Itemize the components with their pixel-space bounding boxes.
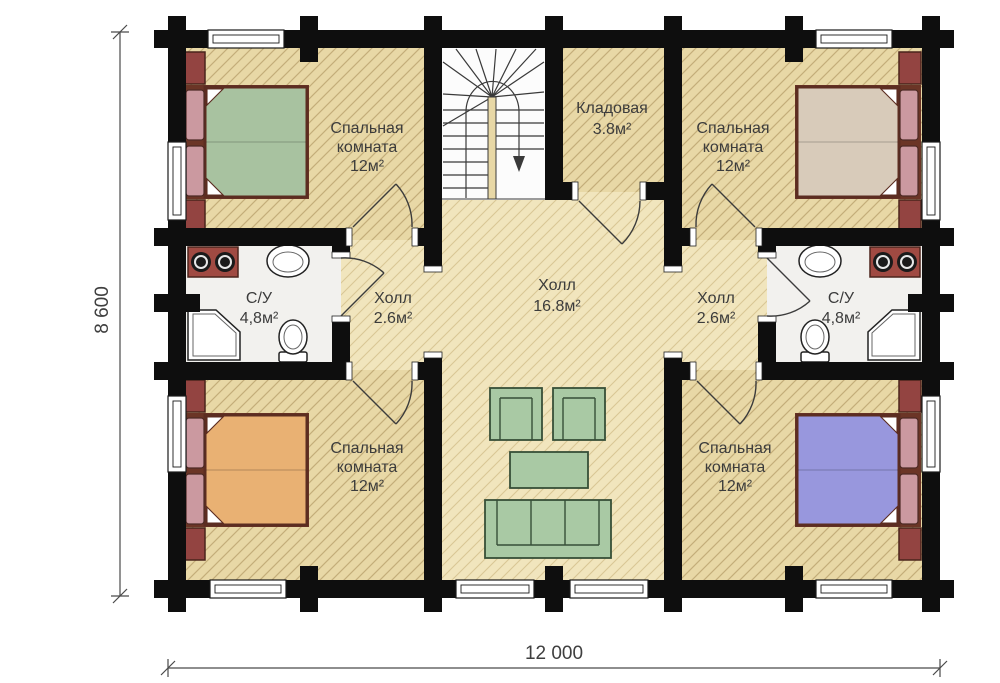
bedroom-tr-area: 12м² [716, 158, 751, 175]
window [816, 580, 892, 598]
storage-label: Кладовая [576, 100, 648, 117]
floor-plan: Спальная комната 12м² Спальная комната 1… [0, 0, 1000, 683]
window [816, 30, 892, 48]
nightstand [183, 528, 205, 560]
dimension-height-label: 8 600 [92, 286, 113, 334]
dimension-left: 8 600 [92, 25, 129, 603]
hall-right-label: Холл [697, 290, 735, 307]
window [168, 142, 186, 220]
sofa [485, 500, 611, 558]
window [922, 142, 940, 220]
armchair [490, 388, 542, 440]
bedroom-tr-label: комната [703, 139, 764, 156]
dimension-width-label: 12 000 [525, 643, 583, 664]
bedroom-tl-label: Спальная [330, 120, 403, 137]
stair-divider [488, 97, 496, 199]
bedroom-bl-label: комната [337, 459, 398, 476]
bath-right-area: 4,8м² [822, 310, 861, 327]
bedroom-br-area: 12м² [718, 478, 753, 495]
window [456, 580, 534, 598]
dimension-bottom: 12 000 [161, 643, 947, 677]
nightstand [899, 200, 921, 232]
bedroom-br-label: Спальная [698, 440, 771, 457]
bedroom-br-label: комната [705, 459, 766, 476]
toilet [279, 320, 307, 362]
nightstand [899, 380, 921, 412]
bath-left-label: С/У [246, 290, 273, 307]
nightstand [899, 528, 921, 560]
hall-right-area: 2.6м² [697, 310, 736, 327]
washing-machine [188, 247, 238, 277]
sink [267, 244, 309, 277]
bath-left-area: 4,8м² [240, 310, 279, 327]
coffee-table [510, 452, 588, 488]
bedroom-bl-area: 12м² [350, 478, 385, 495]
window [922, 396, 940, 472]
window [210, 580, 286, 598]
washing-machine [870, 247, 920, 277]
nightstand [183, 52, 205, 84]
bath-right-label: С/У [828, 290, 855, 307]
bedroom-bl-label: Спальная [330, 440, 403, 457]
bedroom-tl-label: комната [337, 139, 398, 156]
hall-left-label: Холл [374, 290, 412, 307]
sink [799, 244, 841, 277]
window [570, 580, 648, 598]
window [168, 396, 186, 472]
window [208, 30, 284, 48]
bedroom-tr-label: Спальная [696, 120, 769, 137]
hall-center-label: Холл [538, 277, 576, 294]
hall-left-area: 2.6м² [374, 310, 413, 327]
armchair [553, 388, 605, 440]
nightstand [899, 52, 921, 84]
hall-center-area: 16.8м² [533, 298, 581, 315]
floor-plan-canvas: Спальная комната 12м² Спальная комната 1… [0, 0, 1000, 683]
bedroom-tl-area: 12м² [350, 158, 385, 175]
storage-area: 3.8м² [593, 121, 632, 138]
